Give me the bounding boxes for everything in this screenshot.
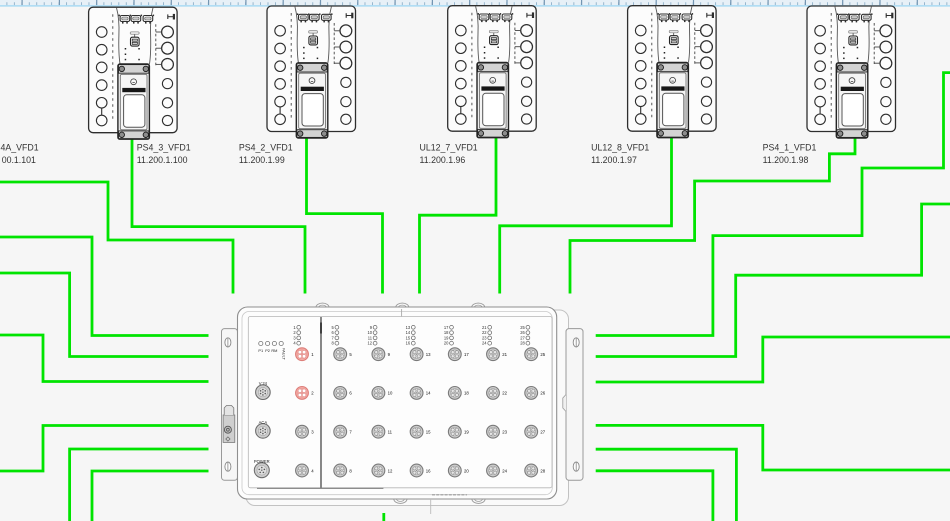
- svg-text:11: 11: [368, 335, 373, 340]
- svg-text:21: 21: [482, 325, 487, 330]
- svg-text:12: 12: [388, 468, 393, 473]
- svg-text:26: 26: [540, 391, 545, 396]
- svg-text:PS4_3_VFD1: PS4_3_VFD1: [137, 143, 191, 153]
- svg-text:11: 11: [388, 430, 393, 435]
- svg-text:PS4_2_VFD1: PS4_2_VFD1: [239, 143, 293, 153]
- svg-text:22: 22: [502, 391, 507, 396]
- svg-text:11.200.1.98: 11.200.1.98: [763, 155, 809, 165]
- svg-text:24: 24: [502, 468, 507, 473]
- svg-text:24: 24: [482, 341, 487, 346]
- svg-text:P2: P2: [265, 348, 270, 353]
- svg-text:20: 20: [444, 341, 449, 346]
- svg-text:RM: RM: [271, 348, 277, 353]
- svg-text:20: 20: [464, 468, 469, 473]
- svg-text:11.200.1.97: 11.200.1.97: [591, 155, 637, 165]
- svg-text:00.1.101: 00.1.101: [2, 155, 36, 165]
- svg-text:ACA: ACA: [259, 420, 268, 425]
- svg-text:13: 13: [406, 325, 411, 330]
- svg-text:23: 23: [482, 335, 487, 340]
- svg-text:11.200.1.100: 11.200.1.100: [137, 155, 188, 165]
- svg-text:16: 16: [426, 468, 431, 473]
- svg-text:16: 16: [406, 341, 411, 346]
- svg-text:26: 26: [520, 330, 525, 335]
- svg-text:23: 23: [502, 430, 507, 435]
- svg-text:27: 27: [540, 430, 545, 435]
- svg-text:18: 18: [464, 391, 469, 396]
- svg-text:13: 13: [426, 352, 431, 357]
- svg-text:11.200.1.99: 11.200.1.99: [239, 155, 285, 165]
- svg-text:17: 17: [464, 352, 469, 357]
- svg-text:15: 15: [406, 335, 411, 340]
- svg-text:18: 18: [444, 330, 449, 335]
- svg-text:14: 14: [426, 391, 431, 396]
- svg-text:UL12_8_VFD1: UL12_8_VFD1: [591, 143, 649, 153]
- svg-text:21: 21: [502, 352, 507, 357]
- svg-text:10: 10: [367, 330, 372, 335]
- svg-text:V.24: V.24: [259, 381, 268, 386]
- svg-text:28: 28: [520, 341, 525, 346]
- svg-text:25: 25: [540, 352, 545, 357]
- svg-text:15: 15: [426, 430, 431, 435]
- svg-text:19: 19: [444, 335, 449, 340]
- svg-text:19: 19: [464, 430, 469, 435]
- svg-text:17: 17: [444, 325, 449, 330]
- svg-text:PS4_1_VFD1: PS4_1_VFD1: [763, 143, 817, 153]
- svg-text:28: 28: [540, 468, 545, 473]
- svg-text:12: 12: [367, 341, 372, 346]
- svg-text:11.200.1.96: 11.200.1.96: [420, 155, 466, 165]
- svg-text:UL12_7_VFD1: UL12_7_VFD1: [420, 143, 478, 153]
- svg-text:27: 27: [520, 335, 525, 340]
- svg-text:4A_VFD1: 4A_VFD1: [1, 143, 39, 153]
- svg-text:P1: P1: [258, 348, 263, 353]
- svg-text:10: 10: [388, 391, 393, 396]
- svg-text:22: 22: [482, 330, 487, 335]
- svg-text:FAULT: FAULT: [282, 348, 287, 360]
- svg-text:25: 25: [520, 325, 525, 330]
- svg-text:POWER: POWER: [254, 459, 270, 464]
- svg-text:14: 14: [406, 330, 411, 335]
